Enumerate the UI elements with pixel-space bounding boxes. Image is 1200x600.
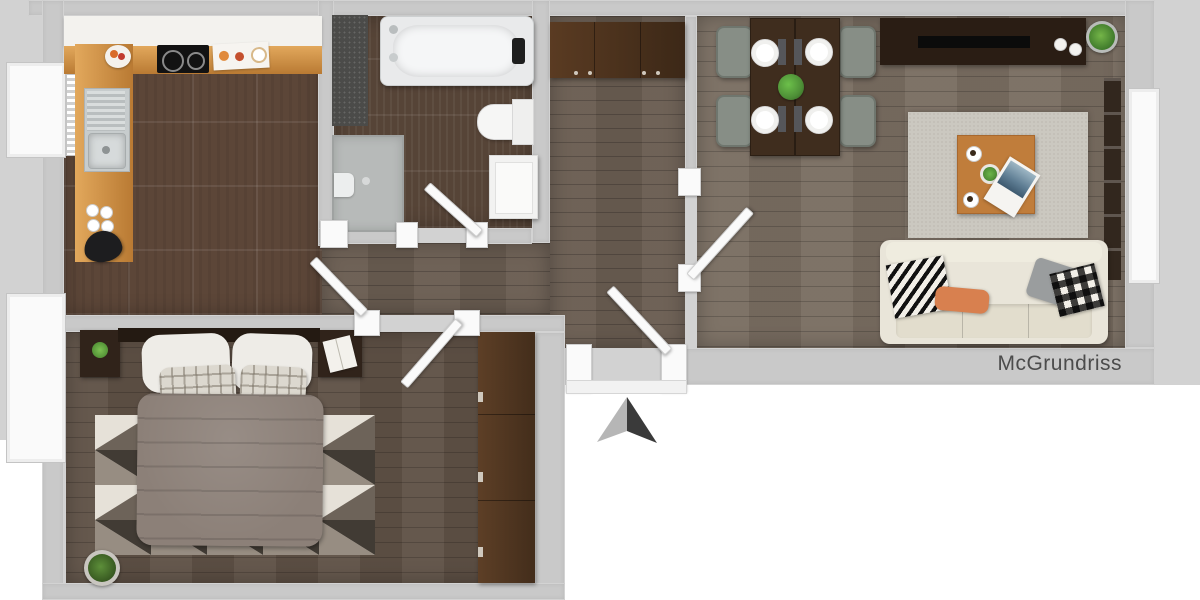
napkin <box>794 106 802 132</box>
shower <box>332 135 404 232</box>
bath-mat <box>332 15 368 126</box>
wall-bedroom-top-right <box>476 315 565 332</box>
wardrobe-seam <box>640 22 641 78</box>
bathtub-faucet <box>389 25 398 34</box>
dinner-plate <box>805 38 833 66</box>
kitchen-sink <box>84 88 130 172</box>
dinner-plate <box>751 106 779 134</box>
washing-machine-lid <box>495 162 533 214</box>
fruit-bowl <box>105 45 131 68</box>
napkin <box>794 39 802 65</box>
bedroom-window <box>6 293 66 463</box>
cushion-orange <box>934 286 990 315</box>
bathtub-headrest <box>512 38 525 64</box>
plant-foliage <box>88 554 116 582</box>
food-item <box>219 51 230 62</box>
floorplan-canvas: McGrundriss <box>0 0 1200 600</box>
kitchen-upper-cabinets <box>64 16 322 46</box>
napkin <box>778 106 786 132</box>
magazine-photo <box>997 160 1036 198</box>
coffee-table <box>957 135 1035 214</box>
hall-wardrobe <box>550 22 685 78</box>
fruit <box>118 53 125 60</box>
book-spine <box>335 338 344 369</box>
potted-plant-bedroom <box>84 550 120 586</box>
wall-bedroom-right <box>535 332 565 600</box>
plant-foliage <box>1089 24 1115 50</box>
wardrobe-seam <box>478 414 535 415</box>
sofa-seam <box>1028 304 1029 338</box>
nightstand-plant <box>92 342 108 358</box>
food-item <box>235 52 244 61</box>
wardrobe-handle <box>656 71 660 75</box>
wardrobe-seam <box>594 22 595 78</box>
bathtub-drain <box>389 53 398 62</box>
cushion-checkered <box>1049 263 1104 317</box>
outside-area-bottom-left <box>0 440 44 600</box>
cup <box>1069 43 1082 56</box>
wardrobe-handle <box>588 71 592 75</box>
wardrobe-seam <box>478 500 535 501</box>
nightstand-left <box>80 330 120 377</box>
dining-chair <box>716 95 753 147</box>
cup-coffee <box>970 150 976 156</box>
cup <box>1054 38 1067 51</box>
bedroom-wardrobe <box>478 332 535 583</box>
cup <box>87 219 100 232</box>
potted-plant-living <box>1086 21 1118 53</box>
shower-drain <box>362 177 370 185</box>
wall-hall-living <box>685 16 697 192</box>
dining-chair <box>839 95 876 147</box>
sofa <box>880 240 1108 344</box>
cup <box>100 206 113 219</box>
kitchen-window <box>6 62 66 158</box>
fruit <box>110 50 118 58</box>
cup <box>86 204 99 217</box>
north-arrow-right-half <box>627 397 657 443</box>
sink-faucet <box>102 146 110 154</box>
bathtub-basin <box>393 25 519 77</box>
bed-duvet <box>136 393 323 547</box>
cooktop-burner-left <box>162 50 184 72</box>
watermark-text: McGrundriss <box>990 352 1122 378</box>
wall-top <box>28 0 1155 16</box>
dining-chair <box>839 26 876 78</box>
espresso-cups <box>86 204 118 234</box>
cutting-board <box>212 42 269 71</box>
cup-coffee <box>967 196 973 202</box>
open-book <box>323 335 358 373</box>
tv-sideboard <box>880 18 1086 65</box>
wardrobe-handle <box>478 472 483 482</box>
sink-drainboard <box>87 91 125 131</box>
dinner-plate <box>805 106 833 134</box>
wall-bedroom-bottom <box>42 583 565 600</box>
food-item <box>251 47 268 64</box>
toilet <box>477 99 532 143</box>
dinner-plate <box>751 39 779 67</box>
door-frame <box>678 168 701 196</box>
bathtub <box>380 16 534 86</box>
wardrobe-handle <box>478 547 483 557</box>
door-frame <box>396 222 418 248</box>
shower-fixture <box>334 173 354 197</box>
tv <box>918 36 1030 48</box>
centerpiece-plant <box>778 74 804 100</box>
wardrobe-handle <box>642 71 646 75</box>
napkin <box>778 39 786 65</box>
nightstand-right <box>318 330 362 377</box>
dining-chair <box>716 26 753 78</box>
toilet-cistern <box>512 99 534 145</box>
cooktop-burner-right <box>187 52 205 70</box>
balcony-door <box>1128 88 1160 284</box>
washing-machine <box>489 155 538 219</box>
wardrobe-handle <box>478 392 483 402</box>
north-arrow-left-half <box>597 397 627 442</box>
north-arrow-icon <box>590 392 665 448</box>
cooktop <box>157 45 209 73</box>
door-frame <box>320 220 348 248</box>
wardrobe-handle <box>574 71 578 75</box>
